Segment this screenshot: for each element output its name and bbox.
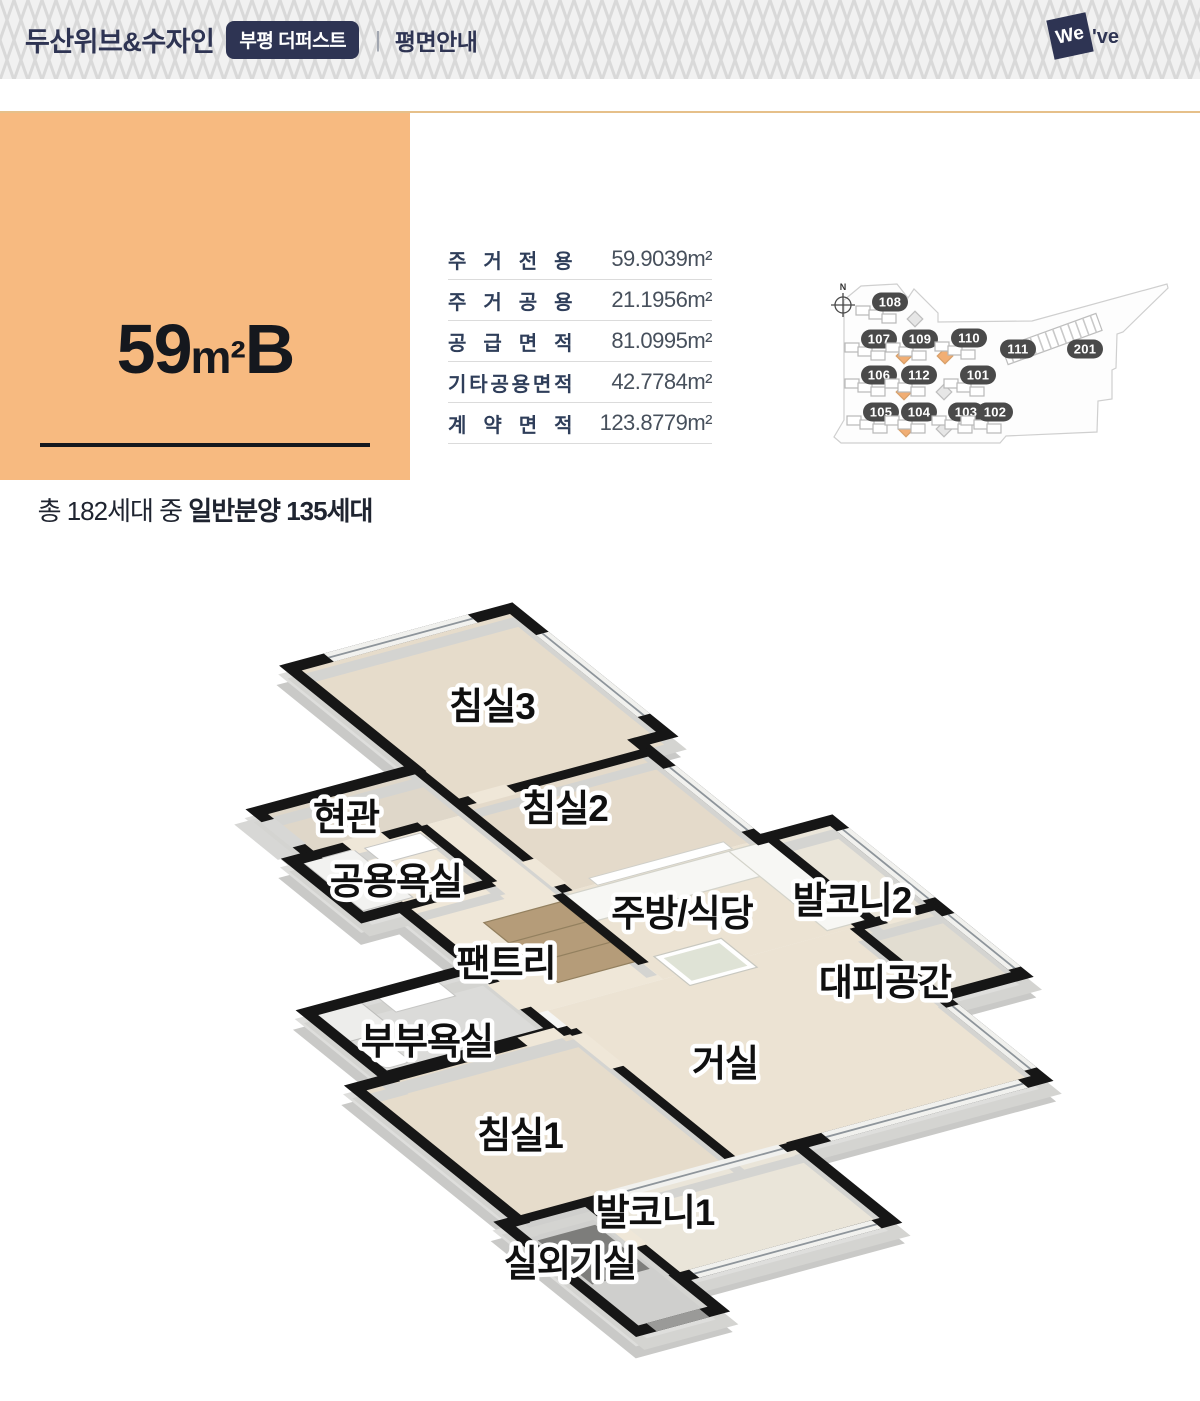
brand-title: 두산위브&수자인 <box>25 20 214 59</box>
building-footprint <box>856 306 870 315</box>
building-footprint <box>961 350 975 359</box>
site-unit-111: 111 <box>1000 340 1036 359</box>
area-spec-row: 주거전용59.9039m² <box>448 239 712 280</box>
site-unit-201: 201 <box>1067 340 1103 359</box>
building-footprint <box>845 379 859 388</box>
area-spec-value: 21.1956m² <box>611 287 712 313</box>
room-label: 침실3 <box>449 686 535 727</box>
unit-type-card: 59 m² B 총 182세대 중 일반분양 135세대 <box>0 113 410 480</box>
building-footprint <box>882 314 896 323</box>
area-spec-row: 기타공용면적42.7784m² <box>448 362 712 403</box>
area-spec-label: 기타공용면적 <box>448 368 572 397</box>
room-label: 침실1 <box>477 1115 563 1156</box>
building-footprint <box>912 351 926 360</box>
unit-number-label: 112 <box>908 368 930 383</box>
unit-number-label: 104 <box>908 405 931 420</box>
weve-logo-square: We <box>1046 12 1093 59</box>
room-label: 발코니1 <box>596 1192 715 1233</box>
floor-plan: 침실3현관침실2공용욕실주방/식당발코니2팬트리대피공간부부욕실거실침실1발코니… <box>0 500 1200 1401</box>
title-divider <box>40 443 370 447</box>
building-footprint <box>987 424 1001 433</box>
area-spec-value: 42.7784m² <box>611 369 712 395</box>
room-label: 대피공간 <box>819 962 952 1003</box>
room-label: 실외기실 <box>504 1243 636 1284</box>
area-spec-label: 주거전용 <box>448 245 572 274</box>
building-footprint <box>847 416 861 425</box>
room-label: 주방/식당 <box>611 893 753 934</box>
area-spec-value: 123.8779m² <box>600 410 712 436</box>
room-label: 현관 <box>313 797 380 838</box>
unit-number-label: 201 <box>1074 342 1097 357</box>
building-footprint <box>885 379 899 388</box>
building-footprint <box>871 387 885 396</box>
unit-number-label: 109 <box>909 332 932 347</box>
room-label: 팬트리 <box>456 943 555 984</box>
building-footprint <box>935 342 949 351</box>
header: 두산위브&수자인 부평 더퍼스트 | 평면안내 We 've <box>0 0 1200 79</box>
unit-type-letter: B <box>245 309 294 389</box>
unit-number-label: 110 <box>958 331 980 346</box>
building-footprint <box>911 424 925 433</box>
building-footprint <box>886 343 900 352</box>
unit-type-title: 59 m² B <box>0 309 410 389</box>
svg-text:N: N <box>840 282 847 292</box>
room-label: 발코니2 <box>793 880 912 921</box>
unit-type-sq: m² <box>191 330 245 384</box>
room-label: 부부욕실 <box>361 1021 493 1062</box>
building-footprint <box>970 387 984 396</box>
building-footprint <box>961 416 975 425</box>
building-footprint <box>885 416 899 425</box>
header-divider: | <box>375 27 381 53</box>
unit-number-label: 101 <box>967 368 990 383</box>
area-spec-row: 주거공용21.1956m² <box>448 280 712 321</box>
area-spec-label: 공급면적 <box>448 327 572 356</box>
area-spec-label: 계약면적 <box>448 409 572 438</box>
page-title: 평면안내 <box>395 23 478 57</box>
unit-type-number: 59 <box>117 309 191 389</box>
area-spec-table: 주거전용59.9039m²주거공용21.1956m²공급면적81.0995m²기… <box>448 239 712 444</box>
building-footprint <box>932 416 946 425</box>
room-label: 침실2 <box>522 788 608 829</box>
area-spec-value: 59.9039m² <box>611 246 712 272</box>
unit-number-label: 111 <box>1007 342 1028 357</box>
building-footprint <box>944 379 958 388</box>
building-footprint <box>871 351 885 360</box>
site-plan: N 10810710911011120110611210110510410310… <box>800 268 1200 458</box>
room-label: 공용욕실 <box>330 861 462 902</box>
building-footprint <box>845 343 859 352</box>
unit-number-label: 102 <box>984 405 1007 420</box>
area-spec-value: 81.0995m² <box>611 328 712 354</box>
building-footprint <box>911 387 925 396</box>
weve-logo-text: 've <box>1092 26 1119 49</box>
room-label: 거실 <box>692 1043 758 1084</box>
unit-number-label: 108 <box>879 295 902 310</box>
project-badge: 부평 더퍼스트 <box>226 21 359 59</box>
area-spec-row: 계약면적123.8779m² <box>448 403 712 444</box>
page: 두산위브&수자인 부평 더퍼스트 | 평면안내 We 've 59 m² B 총… <box>0 0 1200 1401</box>
area-spec-row: 공급면적81.0995m² <box>448 321 712 362</box>
area-spec-label: 주거공용 <box>448 286 572 315</box>
weve-logo: We 've <box>1032 12 1162 67</box>
